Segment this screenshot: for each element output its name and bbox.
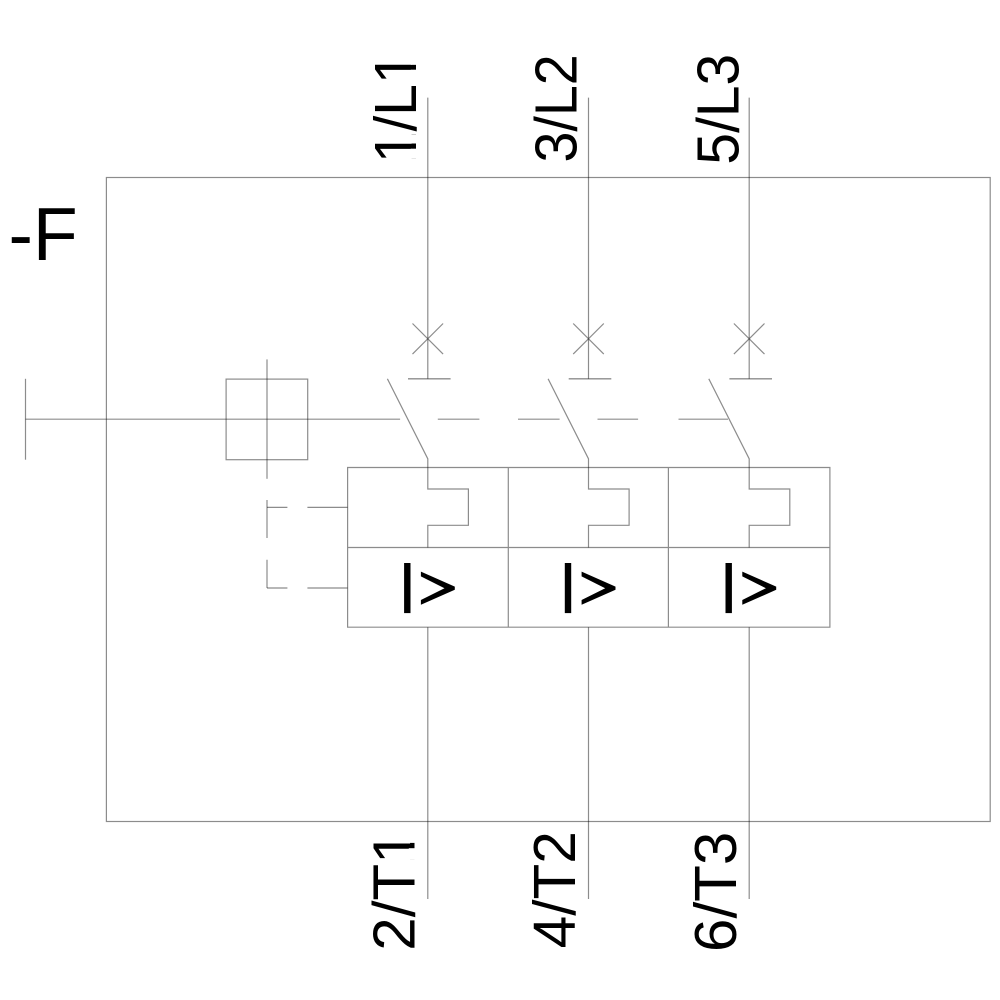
svg-text:1/L1: 1/L1 [362, 52, 429, 163]
svg-text:4/T2: 4/T2 [521, 831, 588, 948]
svg-text:6/T3: 6/T3 [682, 832, 749, 952]
svg-text:-F: -F [9, 192, 78, 276]
svg-text:2/T1: 2/T1 [360, 830, 427, 950]
svg-text:5/L3: 5/L3 [685, 54, 752, 165]
svg-text:3/L2: 3/L2 [523, 54, 590, 162]
